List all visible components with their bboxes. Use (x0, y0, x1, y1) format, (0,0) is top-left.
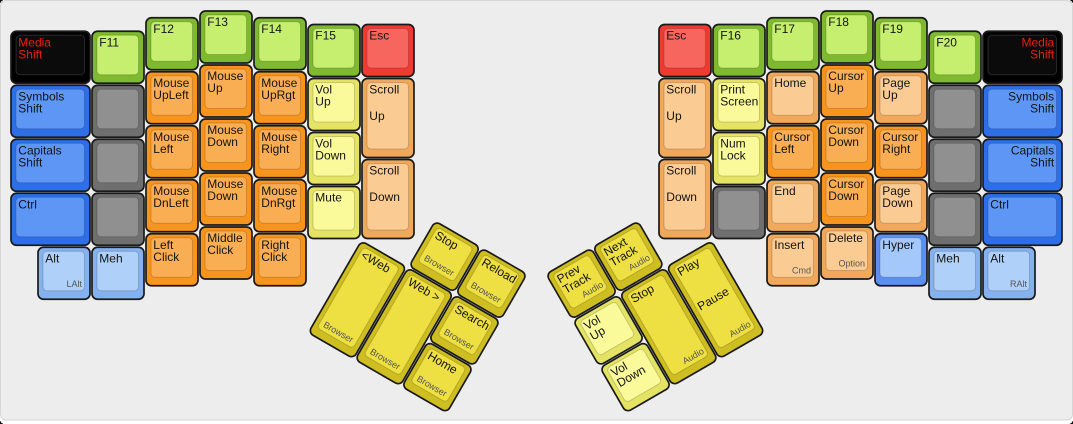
svg-text:Ctrl: Ctrl (990, 197, 1009, 211)
svg-text:F20: F20 (936, 35, 957, 49)
svg-text:Up: Up (828, 81, 844, 95)
svg-text:Up: Up (207, 81, 223, 95)
svg-text:F17: F17 (774, 22, 795, 36)
svg-text:Left: Left (153, 142, 174, 156)
svg-text:F18: F18 (828, 15, 849, 29)
svg-text:LAlt: LAlt (66, 279, 82, 289)
svg-text:Shift: Shift (18, 47, 43, 61)
svg-text:Lock: Lock (720, 149, 746, 163)
svg-text:Shift: Shift (18, 101, 43, 115)
svg-text:Delete: Delete (828, 231, 863, 245)
svg-text:Scroll: Scroll (666, 164, 696, 178)
svg-text:Down: Down (666, 190, 697, 204)
svg-text:Up: Up (882, 88, 898, 102)
svg-text:Shift: Shift (18, 155, 43, 169)
svg-text:RAlt: RAlt (1010, 279, 1028, 289)
svg-text:Down: Down (207, 189, 238, 203)
svg-text:Down: Down (369, 190, 400, 204)
svg-text:Up: Up (666, 109, 682, 123)
svg-text:Down: Down (207, 135, 238, 149)
svg-text:UpRgt: UpRgt (261, 88, 296, 102)
svg-text:Esc: Esc (666, 29, 686, 43)
svg-text:Option: Option (838, 259, 865, 269)
svg-text:Up: Up (315, 95, 331, 109)
svg-text:Left: Left (774, 142, 795, 156)
svg-text:F19: F19 (882, 22, 903, 36)
svg-text:Cmd: Cmd (792, 265, 811, 275)
svg-text:Ctrl: Ctrl (18, 197, 37, 211)
svg-text:F16: F16 (720, 29, 741, 43)
svg-text:Insert: Insert (774, 238, 805, 252)
svg-text:Right: Right (882, 142, 911, 156)
svg-text:DnRgt: DnRgt (261, 196, 296, 210)
svg-text:Alt: Alt (45, 251, 60, 265)
svg-text:F13: F13 (207, 15, 228, 29)
svg-text:Alt: Alt (990, 251, 1005, 265)
svg-text:Hyper: Hyper (882, 238, 914, 252)
svg-text:Mute: Mute (315, 191, 342, 205)
svg-text:Down: Down (828, 189, 859, 203)
svg-text:Down: Down (828, 135, 859, 149)
svg-text:Down: Down (315, 149, 346, 163)
svg-text:Click: Click (207, 243, 234, 257)
svg-text:DnLeft: DnLeft (153, 196, 189, 210)
svg-text:Click: Click (153, 250, 180, 264)
svg-text:F15: F15 (315, 29, 336, 43)
svg-text:Click: Click (261, 250, 288, 264)
svg-text:UpLeft: UpLeft (153, 88, 189, 102)
svg-text:Screen: Screen (720, 95, 758, 109)
svg-text:Up: Up (369, 109, 385, 123)
svg-text:Down: Down (882, 196, 913, 210)
svg-text:F14: F14 (261, 22, 282, 36)
svg-text:Home: Home (774, 76, 806, 90)
svg-text:Scroll: Scroll (369, 164, 399, 178)
svg-text:Meh: Meh (936, 251, 959, 265)
svg-text:F12: F12 (153, 22, 174, 36)
svg-text:Right: Right (261, 142, 290, 156)
svg-text:Shift: Shift (1030, 47, 1055, 61)
svg-text:F11: F11 (99, 35, 119, 49)
svg-text:Esc: Esc (369, 29, 389, 43)
svg-text:Scroll: Scroll (369, 83, 399, 97)
svg-text:Scroll: Scroll (666, 83, 696, 97)
svg-text:Meh: Meh (99, 251, 122, 265)
svg-text:Shift: Shift (1030, 101, 1055, 115)
svg-text:Shift: Shift (1030, 155, 1055, 169)
svg-text:End: End (774, 184, 795, 198)
